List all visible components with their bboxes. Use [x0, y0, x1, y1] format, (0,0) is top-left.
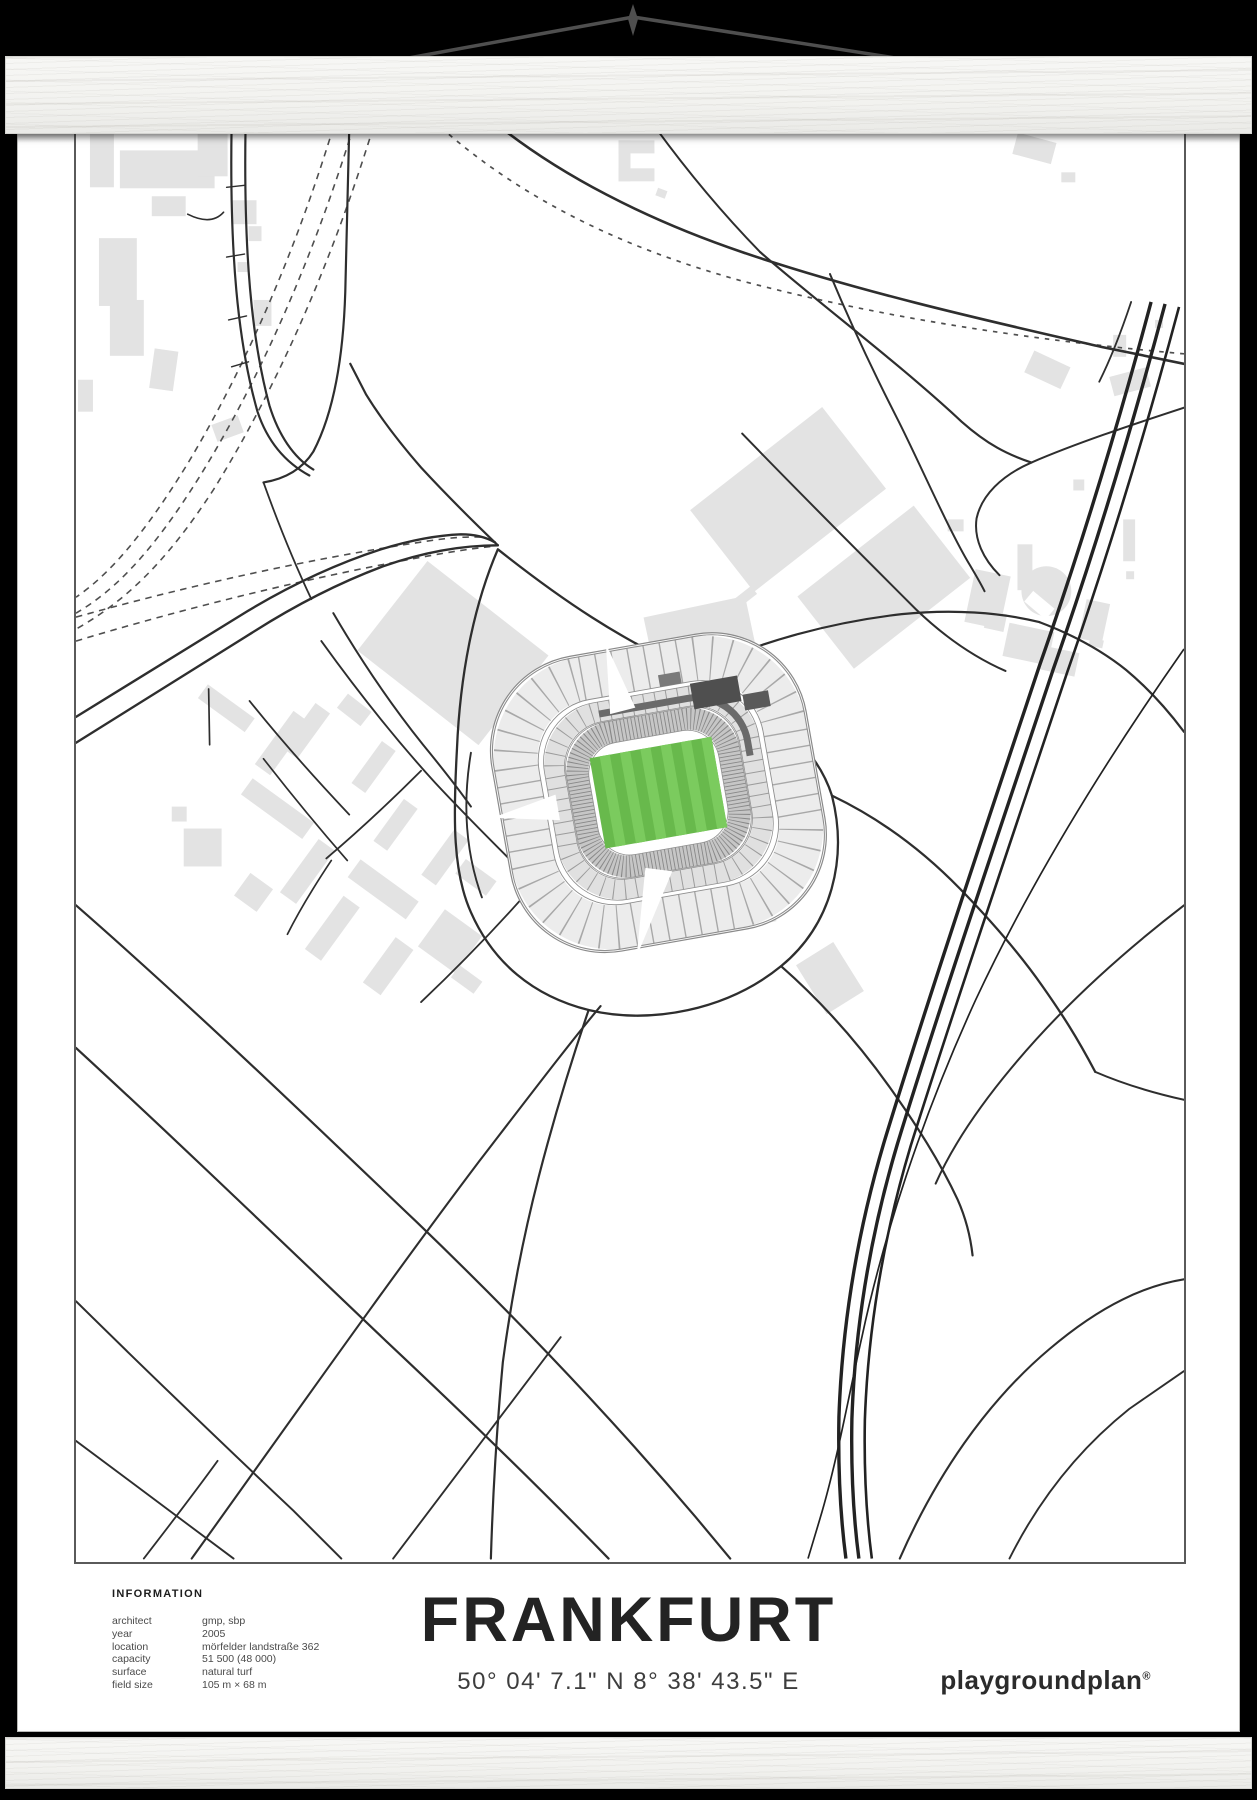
top-wood-hanger-bar	[5, 56, 1252, 134]
string-knot	[628, 4, 638, 36]
map-frame	[74, 125, 1186, 1564]
registered-mark: ®	[1142, 1670, 1151, 1682]
poster-title: FRANKFURT	[18, 1584, 1239, 1656]
brand-text: playgroundplan	[940, 1665, 1142, 1695]
poster: INFORMATION architect gmp, sbp year 2005…	[17, 60, 1240, 1732]
map-svg	[76, 127, 1184, 1562]
bottom-wood-hanger-bar	[5, 1737, 1252, 1789]
scene-background: { "poster": { "title": "FRANKFURT", "coo…	[0, 0, 1257, 1800]
brand-logo: playgroundplan®	[940, 1665, 1151, 1696]
railway-arc	[441, 127, 1184, 353]
